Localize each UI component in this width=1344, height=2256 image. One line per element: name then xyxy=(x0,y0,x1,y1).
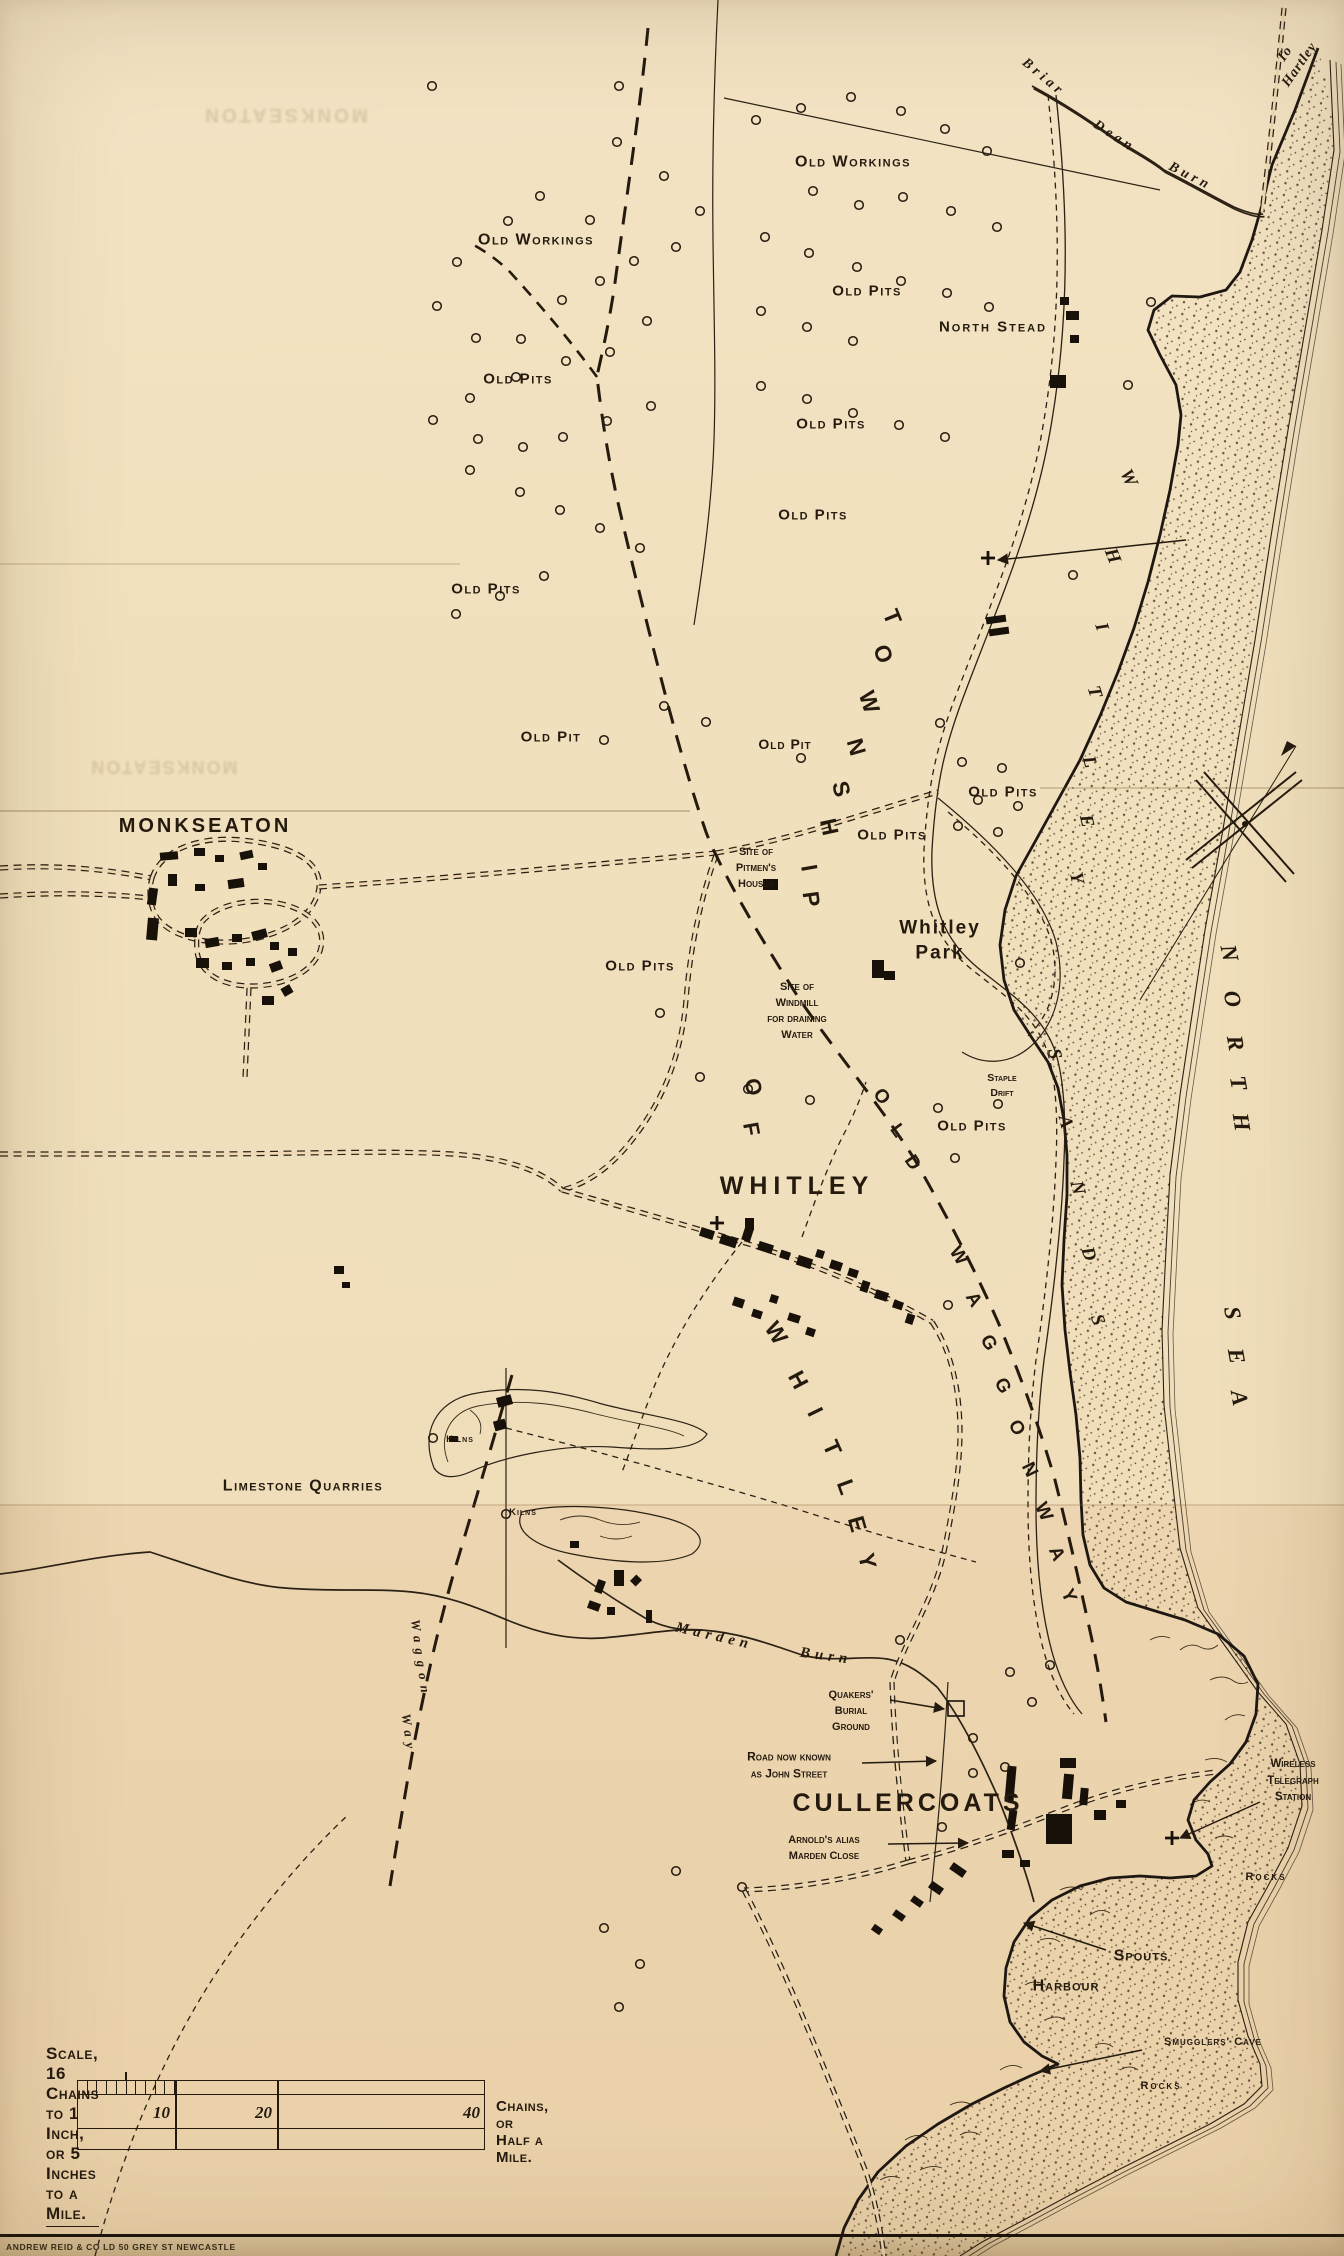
old-pit-marker xyxy=(803,323,812,332)
building xyxy=(905,1313,916,1325)
building xyxy=(270,942,279,950)
old-pit-marker xyxy=(540,572,549,581)
map-artwork xyxy=(0,0,1344,2256)
old-pit-marker xyxy=(596,277,605,286)
label-arnolds-close: Arnold's alias Marden Close xyxy=(788,1833,859,1865)
old-pit-marker xyxy=(600,736,609,745)
old-pit-marker xyxy=(660,702,669,711)
old-pit-marker xyxy=(428,82,437,91)
label-harbour: Harbour xyxy=(1033,1977,1100,1998)
building xyxy=(614,1570,624,1586)
old-pit-marker xyxy=(954,822,963,831)
church-cross-symbol xyxy=(981,551,995,565)
scale-unit-label: Chains, or Half a Mile. xyxy=(496,2098,549,2166)
building xyxy=(1066,311,1079,320)
old-pit-marker xyxy=(998,764,1007,773)
building xyxy=(222,962,232,970)
building xyxy=(859,1280,870,1293)
label-old-pit-1: Old Pit xyxy=(521,727,582,747)
old-pit-marker xyxy=(696,1073,705,1082)
old-pit-marker xyxy=(600,1924,609,1933)
label-john-street: Road now known as John Street xyxy=(747,1749,831,1784)
scale-bar-top-band xyxy=(78,2081,484,2095)
old-pit-marker xyxy=(452,610,461,619)
building xyxy=(570,1541,579,1548)
label-old-pits-1: Old Pits xyxy=(832,281,902,301)
building xyxy=(196,958,209,968)
building xyxy=(493,1419,507,1432)
building xyxy=(587,1600,601,1612)
building xyxy=(194,848,205,856)
old-pit-marker xyxy=(803,395,812,404)
building xyxy=(334,1266,344,1274)
old-pit-marker xyxy=(643,317,652,326)
old-pit-marker xyxy=(556,506,565,515)
old-pit-marker xyxy=(672,243,681,252)
label-old-pits-2: Old Pits xyxy=(483,369,553,389)
old-pit-marker xyxy=(466,394,475,403)
old-pit-marker xyxy=(696,207,705,216)
old-pit-marker xyxy=(993,223,1002,232)
old-pit-marker xyxy=(951,1154,960,1163)
building xyxy=(185,928,197,937)
building xyxy=(719,1234,738,1249)
label-quakers-burial: Quakers' Burial Ground xyxy=(829,1688,874,1736)
old-pit-marker xyxy=(474,435,483,444)
scale-number-20: 20 xyxy=(236,2103,272,2123)
old-pit-marker xyxy=(615,2003,624,2012)
label-old-pits-5: Old Pits xyxy=(451,579,521,599)
old-pit-marker xyxy=(656,1009,665,1018)
scale-bar-divider-10 xyxy=(175,2081,177,2149)
label-cullercoats: CULLERCOATS xyxy=(792,1787,1023,1820)
old-pit-marker xyxy=(562,357,571,366)
waggonway-branch xyxy=(468,242,597,377)
label-kilns-2: Kilns xyxy=(509,1506,537,1520)
old-pit-marker xyxy=(536,192,545,201)
scale-bar: 10 20 40 xyxy=(77,2080,485,2150)
old-pit-marker xyxy=(895,421,904,430)
building xyxy=(949,1862,967,1878)
old-pit-marker xyxy=(1006,1668,1015,1677)
label-whitley-park: Whitley Park xyxy=(899,916,981,965)
building xyxy=(160,851,179,861)
building xyxy=(1062,1774,1074,1800)
old-pit-marker xyxy=(586,216,595,225)
building xyxy=(262,996,274,1005)
building xyxy=(732,1297,745,1309)
building xyxy=(1050,375,1066,388)
building xyxy=(496,1394,513,1408)
label-north-stead: North Stead xyxy=(939,317,1047,337)
building xyxy=(1020,1860,1030,1867)
label-old-pits-3: Old Pits xyxy=(796,414,866,434)
old-pit-marker xyxy=(1028,1698,1037,1707)
old-pit-marker xyxy=(636,1960,645,1969)
building xyxy=(1002,1850,1014,1858)
old-pit-marker xyxy=(606,348,615,357)
building xyxy=(884,971,895,980)
label-old-pits-6: Old Pits xyxy=(968,782,1038,802)
old-pit-marker xyxy=(944,1301,953,1310)
building xyxy=(989,627,1010,637)
old-pit-marker xyxy=(897,107,906,116)
building xyxy=(280,984,293,997)
show-through-text: MONKSEATON xyxy=(56,756,271,777)
building xyxy=(805,1327,816,1337)
old-pit-marker xyxy=(761,233,770,242)
building xyxy=(1116,1800,1126,1808)
old-pit-marker xyxy=(647,402,656,411)
building xyxy=(847,1268,859,1279)
scale-number-40: 40 xyxy=(436,2103,480,2123)
marden-burn-stream xyxy=(0,1552,1034,1902)
church-cross-symbol xyxy=(1165,1831,1179,1845)
old-pit-marker xyxy=(738,1883,747,1892)
old-pit-marker xyxy=(1147,298,1156,307)
old-pit-marker xyxy=(936,719,945,728)
building xyxy=(1060,1758,1076,1768)
label-limestone-quarries: Limestone Quarries xyxy=(223,1477,383,1498)
building xyxy=(630,1574,642,1586)
label-old-pits-4: Old Pits xyxy=(778,505,848,525)
old-pit-marker xyxy=(797,754,806,763)
building xyxy=(986,615,1007,625)
old-pit-marker xyxy=(1069,571,1078,580)
old-pit-marker xyxy=(466,466,475,475)
label-whitley-village: WHITLEY xyxy=(720,1170,875,1203)
building xyxy=(258,863,267,870)
old-pit-marker xyxy=(847,93,856,102)
old-pit-marker xyxy=(660,172,669,181)
building xyxy=(646,1610,652,1623)
building xyxy=(168,874,177,886)
label-old-pits-8: Old Pits xyxy=(605,956,675,976)
building xyxy=(288,948,297,956)
old-pit-marker xyxy=(943,289,952,298)
old-pit-marker xyxy=(433,302,442,311)
old-pit-marker xyxy=(672,1867,681,1876)
old-pit-marker xyxy=(805,249,814,258)
old-pit-marker xyxy=(994,828,1003,837)
building xyxy=(269,960,283,973)
building xyxy=(871,1924,883,1935)
old-pit-marker xyxy=(855,201,864,210)
old-pit-marker xyxy=(613,138,622,147)
building xyxy=(1060,297,1069,305)
old-pit-marker xyxy=(938,1823,947,1832)
building xyxy=(872,960,884,978)
old-pit-marker xyxy=(809,187,818,196)
label-smugglers-cave: Smugglers' Cave xyxy=(1164,2035,1262,2051)
building xyxy=(146,918,159,941)
building xyxy=(769,1294,779,1304)
old-pit-marker xyxy=(752,116,761,125)
building xyxy=(829,1259,843,1271)
old-pit-marker xyxy=(757,382,766,391)
old-pit-marker xyxy=(1046,1661,1055,1670)
old-pit-marker xyxy=(969,1769,978,1778)
building xyxy=(246,958,255,966)
old-pit-marker xyxy=(853,263,862,272)
label-pitmens-houses: Site of Pitmen's Houses xyxy=(736,845,776,893)
old-pit-marker xyxy=(849,337,858,346)
building xyxy=(215,855,224,862)
label-spouts: Spouts xyxy=(1114,1947,1169,1968)
show-through-text: MONKSEATON xyxy=(150,103,420,125)
label-rocks-2: Rocks xyxy=(1140,2079,1181,2095)
map-edge-rule xyxy=(0,2234,1344,2237)
old-pit-marker xyxy=(516,488,525,497)
label-windmill-site: Site of Windmill for draining Water xyxy=(767,980,827,1044)
old-pit-marker xyxy=(429,1434,438,1443)
old-pit-marker xyxy=(896,1636,905,1645)
old-pit-marker xyxy=(559,433,568,442)
old-pit-marker xyxy=(941,125,950,134)
old-pit-marker xyxy=(958,758,967,767)
old-pit-marker xyxy=(899,193,908,202)
old-pit-marker xyxy=(630,257,639,266)
old-pit-marker xyxy=(453,258,462,267)
old-pit-marker xyxy=(504,217,513,226)
printer-imprint: ANDREW REID & CO LD 50 GREY ST NEWCASTLE xyxy=(6,2242,236,2252)
building xyxy=(1079,1788,1088,1806)
old-pit-marker xyxy=(615,82,624,91)
label-staple-drift: Staple Drift xyxy=(987,1071,1016,1101)
old-pit-marker xyxy=(985,303,994,312)
building xyxy=(751,1309,763,1320)
old-pit-marker xyxy=(517,335,526,344)
building xyxy=(757,1241,774,1254)
building xyxy=(796,1255,813,1269)
old-pit-marker xyxy=(519,443,528,452)
building xyxy=(910,1895,924,1908)
limestone-quarry-outlines xyxy=(429,1389,707,1562)
old-pit-marker xyxy=(934,1104,943,1113)
building xyxy=(699,1227,715,1240)
map-canvas: MONKSEATON MONKSEATON Old WorkingsOld Wo… xyxy=(0,0,1344,2256)
label-old-pit-2: Old Pit xyxy=(758,735,811,753)
building xyxy=(874,1289,889,1302)
old-pit-marker xyxy=(558,296,567,305)
building xyxy=(227,878,244,889)
old-pit-marker xyxy=(1124,381,1133,390)
label-rocks-1: Rocks xyxy=(1245,1870,1286,1886)
church-cross-symbol xyxy=(710,1216,724,1230)
scale-bar-tick xyxy=(125,2072,127,2081)
old-pit-marker xyxy=(757,307,766,316)
old-pit-marker xyxy=(636,544,645,553)
old-pit-marker xyxy=(947,207,956,216)
label-old-pits-7: Old Pits xyxy=(857,825,927,845)
building xyxy=(251,928,268,941)
old-pit-marker xyxy=(797,104,806,113)
annotation-arrow xyxy=(888,1843,968,1844)
label-kilns-1: Kilns xyxy=(446,1433,474,1447)
building xyxy=(745,1218,754,1230)
building xyxy=(239,850,253,861)
old-pit-marker xyxy=(596,524,605,533)
building xyxy=(787,1312,801,1323)
waggonways xyxy=(390,28,1106,1886)
building xyxy=(342,1282,350,1288)
building xyxy=(815,1249,825,1259)
label-old-pits-9: Old Pits xyxy=(937,1116,1007,1136)
old-pit-marker xyxy=(702,718,711,727)
scale-bar-subdivisions xyxy=(78,2081,175,2094)
old-pit-marker xyxy=(1014,802,1023,811)
old-pit-marker xyxy=(941,433,950,442)
label-wireless-station: Wireless Telegraph Station xyxy=(1267,1756,1318,1806)
building xyxy=(607,1607,615,1615)
old-pit-marker xyxy=(806,1096,815,1105)
building xyxy=(195,884,205,891)
old-pit-marker xyxy=(472,334,481,343)
label-old-workings-2: Old Workings xyxy=(795,153,911,174)
scale-bar-divider-20 xyxy=(277,2081,279,2149)
annotation-arrow xyxy=(862,1761,936,1763)
annotation-arrow xyxy=(890,1700,944,1709)
building xyxy=(232,934,242,942)
building xyxy=(1046,1814,1072,1844)
scale-number-10: 10 xyxy=(134,2103,170,2123)
old-pit-marker xyxy=(429,416,438,425)
briar-dean-burn-stream xyxy=(1032,86,1265,217)
building xyxy=(1070,335,1079,343)
building xyxy=(1094,1810,1106,1820)
building xyxy=(892,1909,906,1922)
label-monkseaton: MONKSEATON xyxy=(119,813,292,839)
label-old-workings-1: Old Workings xyxy=(478,231,594,252)
